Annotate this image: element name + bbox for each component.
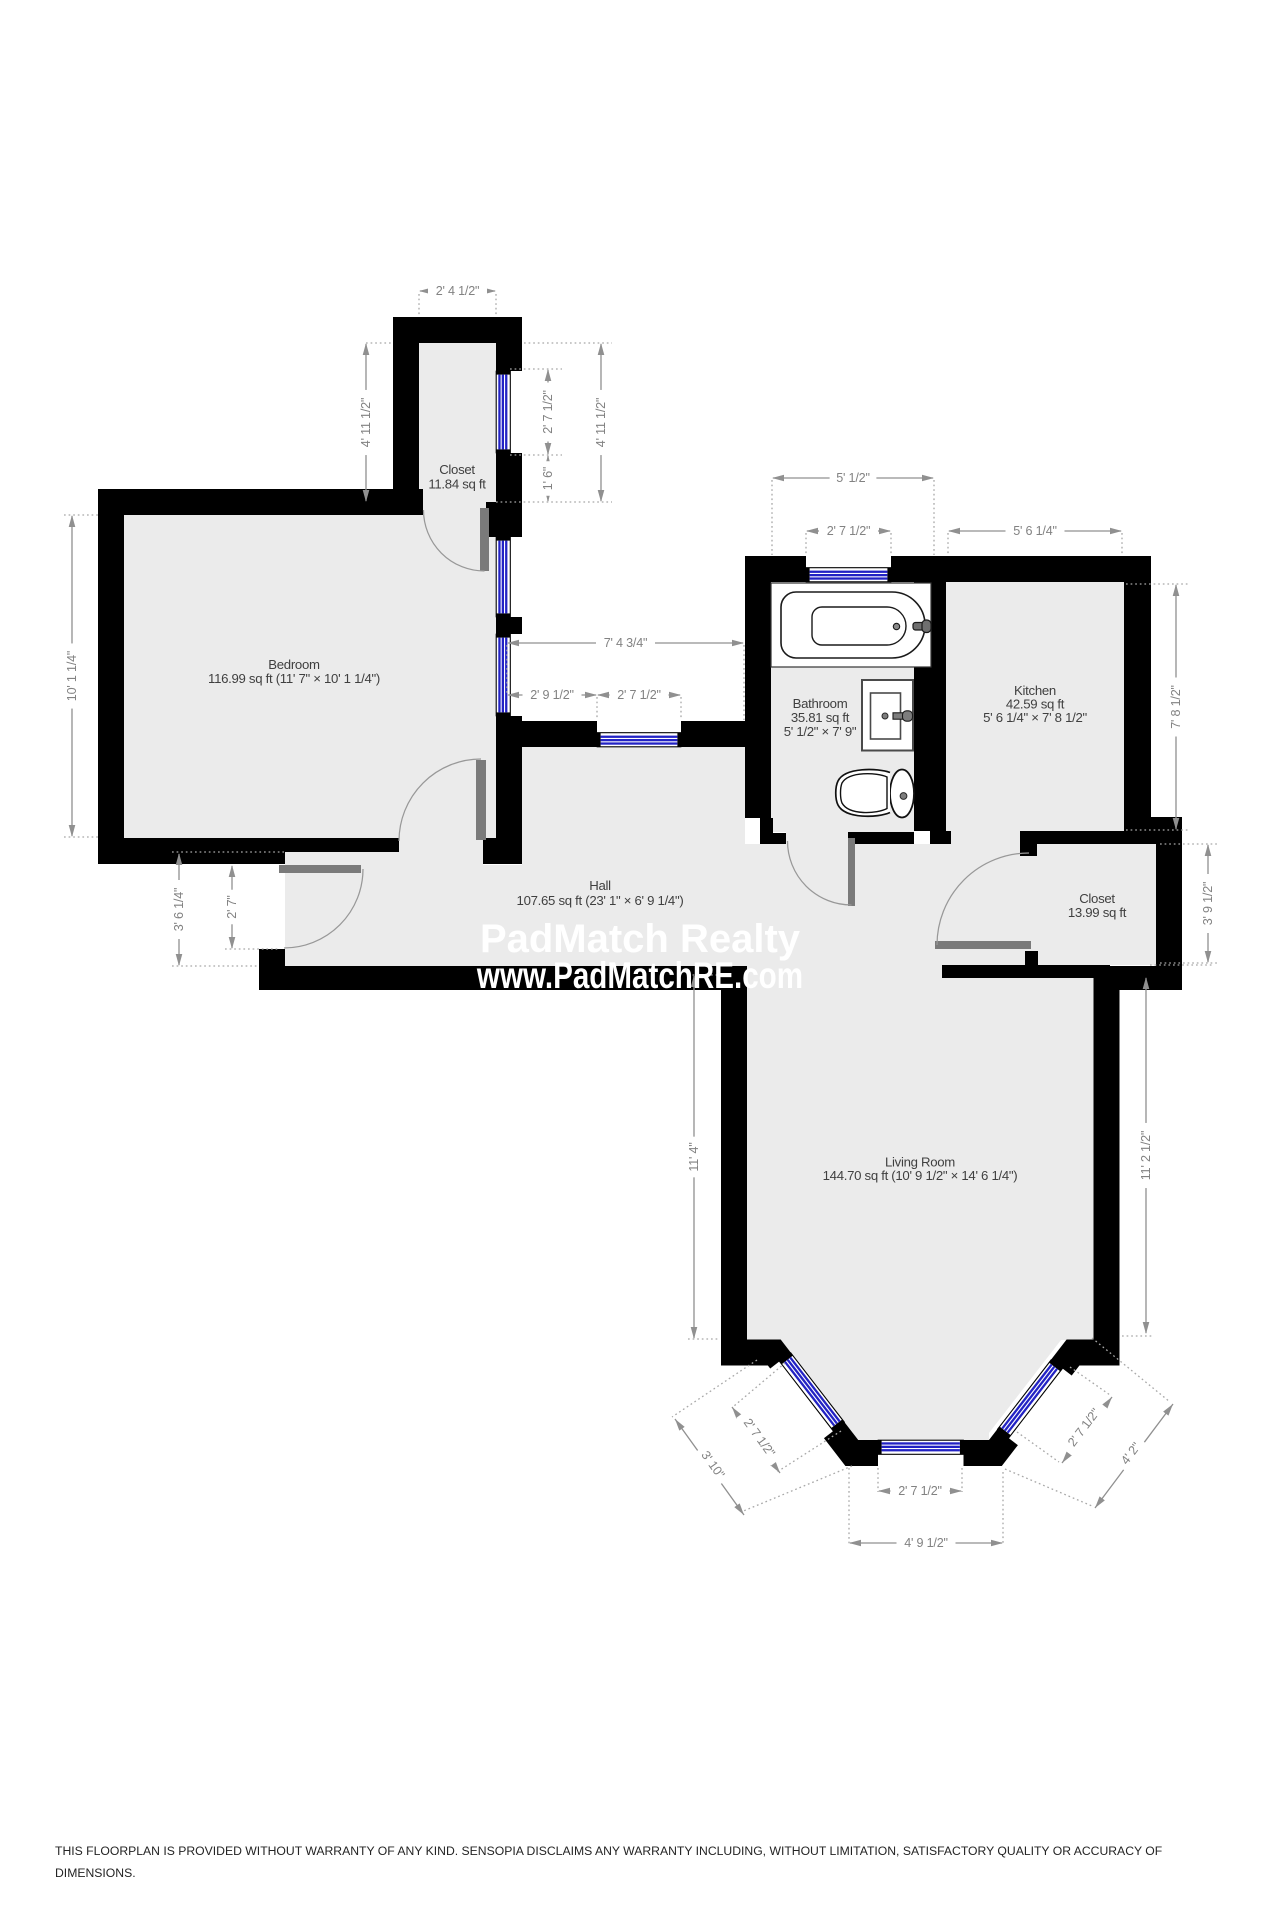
- svg-text:5' 6 1/4": 5' 6 1/4": [1013, 524, 1057, 538]
- svg-text:2' 4 1/2": 2' 4 1/2": [436, 284, 480, 298]
- svg-text:www.PadMatchRE.com: www.PadMatchRE.com: [476, 956, 803, 997]
- svg-text:2' 9 1/2": 2' 9 1/2": [530, 688, 574, 702]
- svg-text:2' 7 1/2": 2' 7 1/2": [1065, 1406, 1102, 1449]
- svg-text:PadMatch Realty: PadMatch Realty: [480, 917, 801, 961]
- svg-text:THIS FLOORPLAN IS PROVIDED WIT: THIS FLOORPLAN IS PROVIDED WITHOUT WARRA…: [55, 1844, 1162, 1858]
- svg-text:1' 6": 1' 6": [541, 467, 555, 490]
- svg-text:10' 1 1/4": 10' 1 1/4": [65, 651, 79, 701]
- svg-text:2' 7 1/2": 2' 7 1/2": [541, 390, 555, 434]
- svg-text:3' 9 1/2": 3' 9 1/2": [1201, 882, 1215, 926]
- svg-text:4' 9 1/2": 4' 9 1/2": [904, 1536, 948, 1550]
- svg-text:11.84 sq ft: 11.84 sq ft: [428, 477, 486, 492]
- svg-text:2' 7": 2' 7": [225, 895, 239, 918]
- svg-text:5' 1/2": 5' 1/2": [836, 471, 870, 485]
- svg-text:Closet: Closet: [1079, 891, 1115, 906]
- svg-text:4' 11 1/2": 4' 11 1/2": [594, 398, 608, 447]
- svg-text:11' 4": 11' 4": [687, 1142, 701, 1171]
- svg-text:3' 6 1/4": 3' 6 1/4": [172, 888, 186, 932]
- svg-text:5' 6 1/4" × 7' 8 1/2": 5' 6 1/4" × 7' 8 1/2": [983, 710, 1087, 725]
- svg-text:2' 7 1/2": 2' 7 1/2": [827, 524, 871, 538]
- svg-text:Closet: Closet: [439, 462, 475, 477]
- svg-text:2' 7 1/2": 2' 7 1/2": [617, 688, 661, 702]
- svg-text:4' 11 1/2": 4' 11 1/2": [359, 398, 373, 447]
- svg-text:107.65 sq ft (23' 1" × 6' 9 1/: 107.65 sq ft (23' 1" × 6' 9 1/4"): [517, 893, 684, 908]
- svg-text:Bedroom: Bedroom: [268, 657, 320, 672]
- svg-text:Bathroom: Bathroom: [793, 696, 848, 711]
- svg-text:5' 1/2" × 7' 9": 5' 1/2" × 7' 9": [784, 724, 857, 739]
- svg-text:7' 4 3/4": 7' 4 3/4": [604, 636, 648, 650]
- svg-text:144.70 sq ft (10' 9 1/2" × 14': 144.70 sq ft (10' 9 1/2" × 14' 6 1/4"): [823, 1168, 1018, 1183]
- svg-text:2' 7 1/2": 2' 7 1/2": [741, 1416, 778, 1459]
- svg-text:13.99 sq ft: 13.99 sq ft: [1068, 905, 1127, 920]
- svg-text:Hall: Hall: [589, 878, 611, 893]
- svg-text:2' 7 1/2": 2' 7 1/2": [898, 1484, 942, 1498]
- svg-text:7' 8 1/2": 7' 8 1/2": [1169, 685, 1183, 729]
- svg-text:DIMENSIONS.: DIMENSIONS.: [55, 1866, 136, 1880]
- svg-text:116.99 sq ft (11' 7" × 10' 1 1: 116.99 sq ft (11' 7" × 10' 1 1/4"): [208, 671, 380, 686]
- svg-text:35.81 sq ft: 35.81 sq ft: [791, 710, 850, 725]
- svg-text:11' 2 1/2": 11' 2 1/2": [1139, 1131, 1153, 1180]
